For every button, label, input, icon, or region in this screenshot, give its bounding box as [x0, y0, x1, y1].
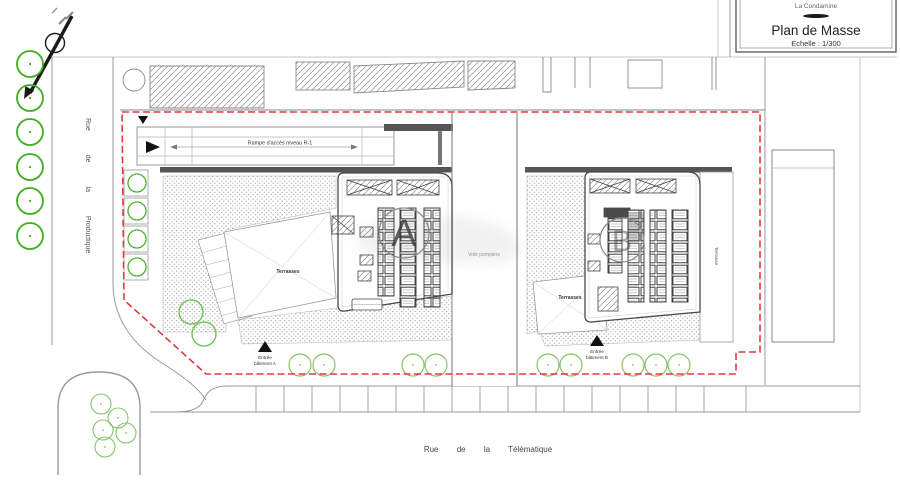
entry-a-label-2: bâtiment A [254, 361, 277, 366]
entry-b-label-2: bâtiment B [586, 355, 608, 360]
side-terrace-strip: Terrasse [700, 172, 733, 342]
traffic-island [58, 372, 140, 475]
street-name-bottom: Rue de la Télématique [424, 445, 553, 454]
terrace-a-label: Terrasses [276, 269, 299, 275]
divider-lens-icon [803, 14, 829, 18]
plan-scale: Echelle : 1/300 [791, 39, 841, 48]
building-b-letter: B [612, 225, 632, 258]
entry-a-label-1: Entrée [258, 355, 272, 360]
building-b: B [585, 172, 700, 322]
ramp-label: Rampe d'accès niveau R-1 [248, 141, 313, 147]
terrace-b-label: Terrasses [558, 295, 581, 301]
terrace-side-label: Terrasse [713, 247, 719, 266]
title-block: La Condamine Plan de Masse Echelle : 1/3… [736, 0, 896, 52]
project-name: La Condamine [795, 3, 838, 10]
site-plan-sheet: La Condamine Plan de Masse Echelle : 1/3… [0, 0, 900, 500]
plan-title: Plan de Masse [771, 23, 860, 38]
existing-building-right [772, 150, 834, 342]
entry-b-label-1: Entrée [590, 349, 604, 354]
site-plan-drawing: La Condamine Plan de Masse Echelle : 1/3… [0, 0, 900, 500]
street-name-left: Rue de la Productique [84, 118, 91, 253]
